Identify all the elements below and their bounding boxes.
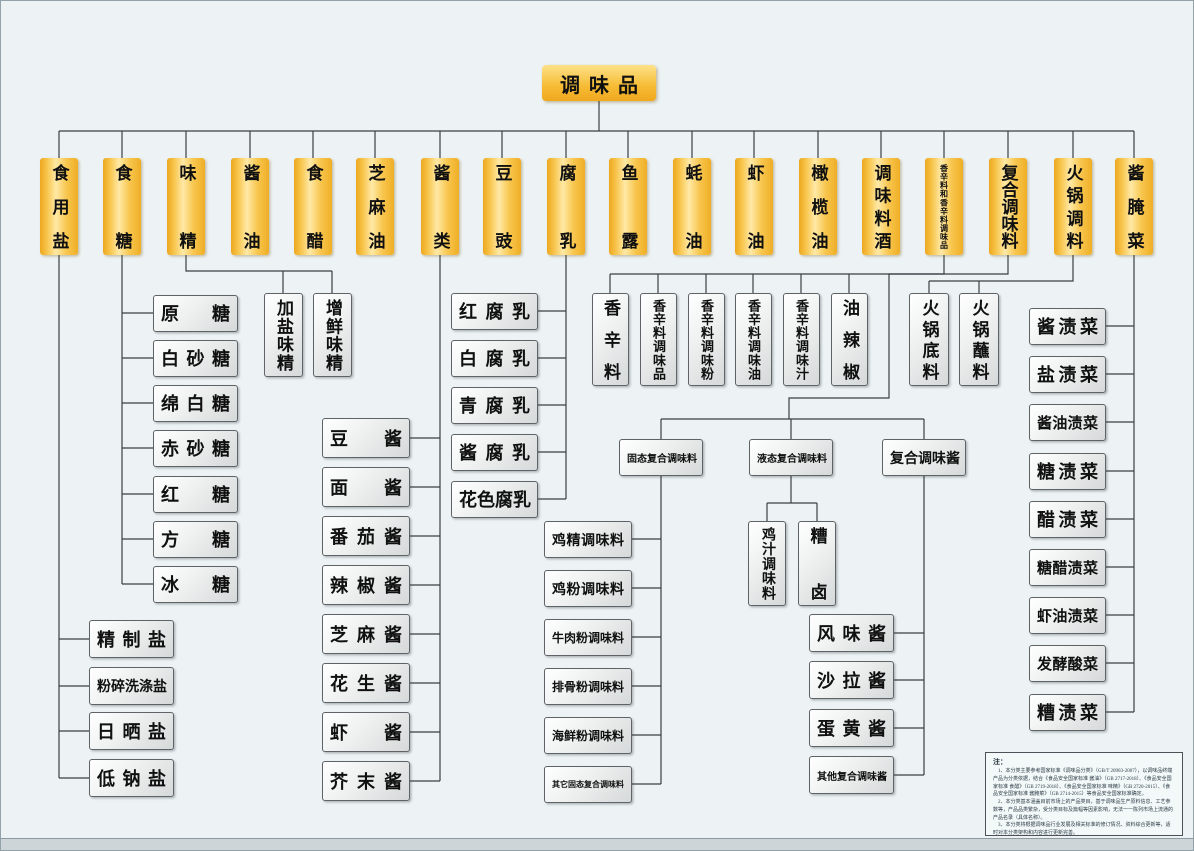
subcategory-node-label: 鸡汁调味料 [757, 527, 777, 600]
subcategory-node: 其它固态复合调味料 [544, 766, 632, 803]
subcategory-node: 火锅底料 [909, 293, 949, 386]
subcategory-node-label: 液态复合调味料 [757, 450, 825, 465]
subcategory-node: 排骨粉调味料 [544, 668, 632, 705]
category-node-label: 腐乳 [554, 164, 579, 249]
subcategory-node: 糟卤 [798, 521, 836, 606]
subcategory-node-label: 糟渍菜 [1037, 699, 1098, 725]
subcategory-node-label: 赤砂糖 [161, 435, 230, 461]
subcategory-node: 原糖 [153, 295, 238, 332]
category-node-label: 芝麻油 [363, 164, 388, 249]
subcategory-node: 绵白糖 [153, 385, 238, 422]
category-node: 味精 [167, 158, 205, 255]
note-paragraph: 3、本分类将根据调味品行业发展及相关标准的修订情况、资料综合更新等，适时对本分类… [993, 822, 1175, 838]
subcategory-node: 虾油渍菜 [1029, 597, 1106, 634]
subcategory-node-label: 醋渍菜 [1037, 506, 1098, 532]
subcategory-node: 海鲜粉调味料 [544, 717, 632, 754]
subcategory-node: 火锅蘸料 [959, 293, 999, 386]
category-node: 食醋 [294, 158, 332, 255]
category-node-label: 火锅调料 [1061, 164, 1086, 249]
subcategory-node: 粉碎洗涤盐 [89, 667, 174, 705]
category-node-label: 食用盐 [47, 164, 72, 249]
subcategory-node: 香辛料调味粉 [688, 293, 725, 386]
subcategory-node-label: 香辛料 [598, 299, 623, 380]
subcategory-node: 鸡精调味料 [544, 521, 632, 558]
subcategory-node: 增鲜味精 [313, 293, 352, 377]
subcategory-node-label: 虾油渍菜 [1037, 605, 1098, 626]
subcategory-node-label: 白砂糖 [161, 345, 230, 371]
category-node-label: 豆豉 [490, 164, 515, 249]
subcategory-node: 酱渍菜 [1029, 308, 1106, 345]
subcategory-node: 芥末酱 [322, 761, 410, 801]
subcategory-node-label: 酱油渍菜 [1037, 412, 1098, 433]
subcategory-node-label: 香辛料调味油 [744, 299, 763, 380]
subcategory-node: 冰糖 [153, 566, 238, 603]
subcategory-node-label: 其它固态复合调味料 [552, 779, 624, 790]
subcategory-node: 青腐乳 [451, 387, 538, 424]
subcategory-node: 红糖 [153, 476, 238, 513]
subcategory-node: 花生酱 [322, 663, 410, 703]
category-node: 豆豉 [483, 158, 521, 255]
subcategory-node: 风味酱 [809, 614, 894, 652]
subcategory-node-label: 方糖 [161, 526, 230, 552]
subcategory-node-label: 海鲜粉调味料 [552, 727, 624, 744]
subcategory-node-label: 香辛料调味粉 [697, 299, 716, 380]
category-node-label: 橄榄油 [806, 164, 831, 249]
subcategory-node: 番茄酱 [322, 516, 410, 556]
subcategory-node-label: 糟卤 [805, 527, 830, 600]
subcategory-node-label: 糖渍菜 [1037, 458, 1098, 484]
category-node: 火锅调料 [1054, 158, 1092, 255]
subcategory-node-label: 酱渍菜 [1037, 313, 1098, 339]
subcategory-node-label: 蛋黄酱 [817, 715, 886, 741]
subcategory-node-label: 鸡粉调味料 [552, 579, 624, 599]
subcategory-node-label: 发酵酸菜 [1037, 653, 1098, 674]
subcategory-node: 香辛料调味品 [640, 293, 677, 386]
subcategory-node: 低钠盐 [89, 759, 174, 797]
note-box: 注： 1、本分类主要参考国家标准《调味品分类》（GB/T 20903-2007）… [985, 752, 1183, 836]
subcategory-node-label: 粉碎洗涤盐 [97, 676, 166, 696]
subcategory-node: 蛋黄酱 [809, 709, 894, 747]
category-node: 腐乳 [547, 158, 585, 255]
note-paragraph: 2、本分类基本涵盖目前市场上的产品类目，基于调味品生产原料信息、工艺参数等，产品… [993, 799, 1175, 822]
category-node-label: 食糖 [110, 164, 135, 249]
category-node-label: 蚝油 [680, 164, 705, 249]
category-node: 调味料酒 [862, 158, 900, 255]
subcategory-node: 酱腐乳 [451, 434, 538, 471]
subcategory-node: 芝麻酱 [322, 614, 410, 654]
subcategory-node-label: 增鲜味精 [320, 299, 345, 371]
subcategory-node-label: 芝麻酱 [330, 621, 402, 647]
subcategory-node-label: 沙拉酱 [817, 667, 886, 693]
subcategory-node-label: 青腐乳 [459, 392, 530, 418]
subcategory-node-label: 红糖 [161, 481, 230, 507]
subcategory-node-label: 面酱 [330, 474, 402, 500]
subcategory-node: 香辛料 [592, 293, 629, 386]
subcategory-node: 辣椒酱 [322, 565, 410, 605]
category-node: 食糖 [103, 158, 141, 255]
subcategory-node-label: 番茄酱 [330, 523, 402, 549]
subcategory-node: 加盐味精 [264, 293, 303, 377]
subcategory-node-label: 风味酱 [817, 620, 886, 646]
subcategory-node-label: 排骨粉调味料 [552, 678, 624, 695]
category-node-label: 酱类 [428, 164, 453, 249]
category-node-label: 复合调味料 [996, 164, 1021, 249]
category-node: 虾油 [735, 158, 773, 255]
subcategory-node: 日晒盐 [89, 712, 174, 750]
category-node-label: 香辛料和香辛料调味品 [939, 164, 950, 249]
subcategory-node: 盐渍菜 [1029, 356, 1106, 393]
subcategory-node: 酱油渍菜 [1029, 404, 1106, 441]
subcategory-node-label: 原糖 [161, 300, 230, 326]
subcategory-node-label: 芥末酱 [330, 768, 402, 794]
category-node-label: 食醋 [301, 164, 326, 249]
subcategory-node: 沙拉酱 [809, 661, 894, 699]
subcategory-node: 其他复合调味酱 [809, 756, 894, 794]
subcategory-node-label: 辣椒酱 [330, 572, 402, 598]
connector [929, 255, 1073, 281]
root-node: 调味品 [542, 65, 656, 101]
subcategory-node: 油辣椒 [831, 293, 868, 386]
subcategory-node-label: 日晒盐 [97, 718, 166, 744]
subcategory-node-label: 冰糖 [161, 571, 230, 597]
subcategory-node-label: 糖醋渍菜 [1037, 557, 1098, 578]
subcategory-node: 精制盐 [89, 620, 174, 658]
subcategory-node-label: 固态复合调味料 [627, 450, 695, 465]
category-node-label: 味精 [174, 164, 199, 249]
subcategory-node: 红腐乳 [451, 293, 538, 330]
subcategory-node-label: 鸡精调味料 [552, 530, 624, 550]
subcategory-node: 赤砂糖 [153, 430, 238, 467]
subcategory-node: 花色腐乳 [451, 481, 538, 518]
subcategory-node: 豆酱 [322, 418, 410, 458]
subcategory-node: 糖醋渍菜 [1029, 549, 1106, 586]
subcategory-node-label: 花生酱 [330, 670, 402, 696]
subcategory-node-label: 虾酱 [330, 719, 402, 745]
subcategory-node: 固态复合调味料 [619, 439, 703, 476]
subcategory-node: 复合调味酱 [882, 439, 966, 476]
subcategory-node-label: 豆酱 [330, 425, 402, 451]
subcategory-node: 白腐乳 [451, 340, 538, 377]
category-node: 酱腌菜 [1115, 158, 1153, 255]
subcategory-node: 发酵酸菜 [1029, 645, 1106, 682]
subcategory-node-label: 低钠盐 [97, 765, 166, 791]
category-node: 蚝油 [673, 158, 711, 255]
category-node: 香辛料和香辛料调味品 [925, 158, 963, 255]
subcategory-node: 液态复合调味料 [749, 439, 833, 476]
subcategory-node-label: 绵白糖 [161, 390, 230, 416]
subcategory-node: 面酱 [322, 467, 410, 507]
subcategory-node-label: 加盐味精 [271, 299, 296, 371]
subcategory-node-label: 白腐乳 [459, 345, 530, 371]
page: 调味品食用盐食糖味精酱油食醋芝麻油酱类豆豉腐乳鱼露蚝油虾油橄榄油调味料酒香辛料和… [0, 0, 1194, 851]
category-node: 酱类 [421, 158, 459, 255]
connector [186, 255, 332, 271]
subcategory-node: 方糖 [153, 521, 238, 558]
category-node-label: 酱腌菜 [1122, 164, 1147, 249]
note-paragraph: 1、本分类主要参考国家标准《调味品分类》（GB/T 20903-2007），以调… [993, 768, 1175, 799]
subcategory-node-label: 复合调味酱 [890, 448, 958, 468]
subcategory-node: 鸡粉调味料 [544, 570, 632, 607]
subcategory-node-label: 香辛料调味品 [649, 299, 668, 380]
note-title: 注： [993, 757, 1175, 767]
subcategory-node-label: 精制盐 [97, 626, 166, 652]
subcategory-node: 白砂糖 [153, 340, 238, 377]
subcategory-node-label: 牛肉粉调味料 [552, 629, 624, 646]
subcategory-node-label: 其他复合调味酱 [817, 768, 886, 783]
category-node: 鱼露 [609, 158, 647, 255]
category-node: 复合调味料 [989, 158, 1027, 255]
subcategory-node-label: 火锅蘸料 [967, 299, 992, 380]
subcategory-node: 牛肉粉调味料 [544, 619, 632, 656]
category-node: 酱油 [231, 158, 269, 255]
subcategory-node-label: 油辣椒 [837, 299, 862, 380]
bottom-band [1, 838, 1193, 850]
subcategory-node-label: 红腐乳 [459, 298, 530, 324]
subcategory-node: 鸡汁调味料 [748, 521, 786, 606]
subcategory-node-label: 花色腐乳 [459, 486, 530, 512]
connector [610, 255, 944, 274]
subcategory-node-label: 盐渍菜 [1037, 361, 1098, 387]
subcategory-node: 香辛料调味油 [735, 293, 772, 386]
subcategory-node-label: 香辛料调味汁 [792, 299, 811, 380]
subcategory-node: 糟渍菜 [1029, 694, 1106, 731]
category-node-label: 鱼露 [616, 164, 641, 249]
category-node-label: 调味料酒 [869, 164, 894, 249]
subcategory-node-label: 酱腐乳 [459, 439, 530, 465]
root-node-label: 调味品 [551, 69, 647, 98]
subcategory-node: 虾酱 [322, 712, 410, 752]
category-node-label: 酱油 [238, 164, 263, 249]
category-node: 芝麻油 [356, 158, 394, 255]
subcategory-node: 香辛料调味汁 [783, 293, 820, 386]
category-node: 橄榄油 [799, 158, 837, 255]
subcategory-node-label: 火锅底料 [917, 299, 942, 380]
category-node: 食用盐 [40, 158, 78, 255]
subcategory-node: 糖渍菜 [1029, 453, 1106, 490]
category-node-label: 虾油 [742, 164, 767, 249]
subcategory-node: 醋渍菜 [1029, 501, 1106, 538]
